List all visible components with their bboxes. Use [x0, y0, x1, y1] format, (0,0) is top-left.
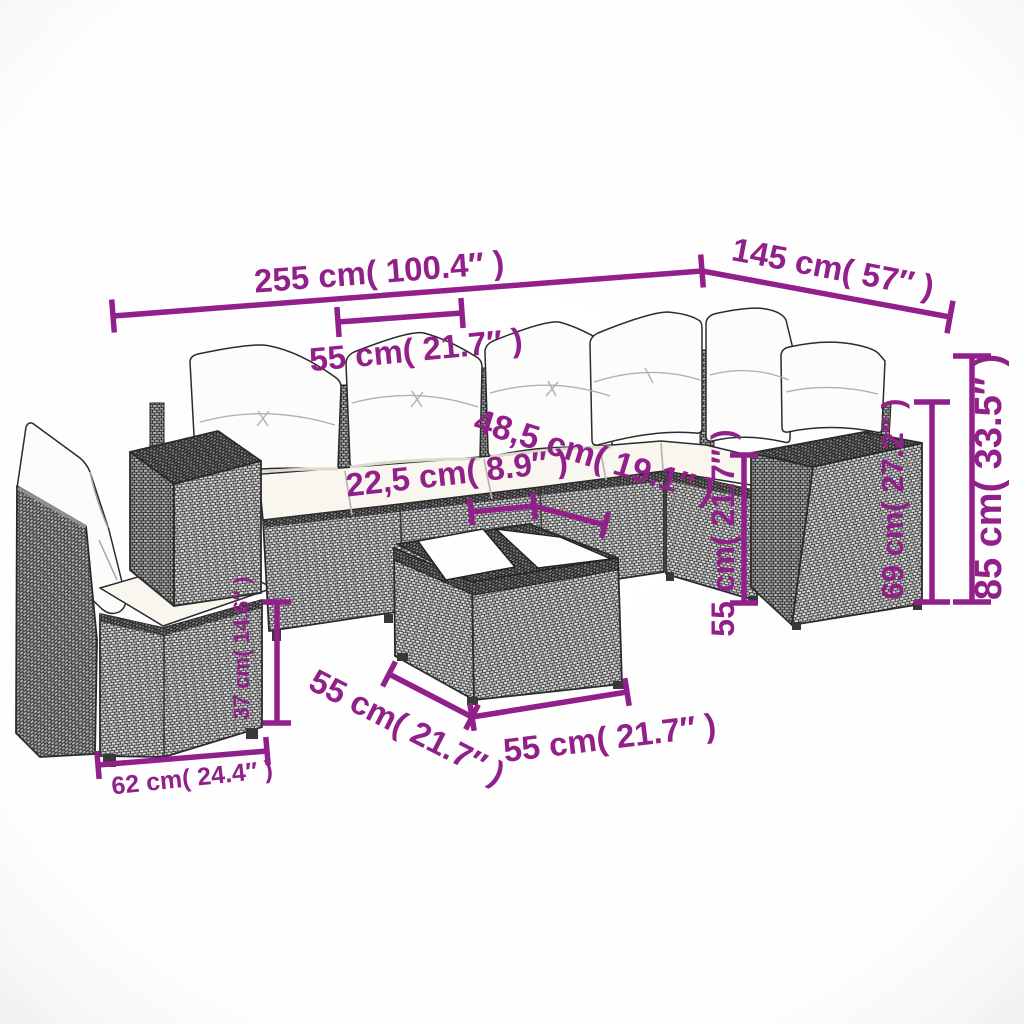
svg-text:85 cm( 33.5″ ): 85 cm( 33.5″ ): [968, 354, 1010, 600]
svg-text:37 cm( 14.6″ ): 37 cm( 14.6″ ): [229, 577, 254, 720]
svg-text:55 cm( 21.7″ ): 55 cm( 21.7″ ): [705, 429, 741, 636]
svg-text:69 cm( 27.2″ ): 69 cm( 27.2″ ): [875, 399, 910, 600]
